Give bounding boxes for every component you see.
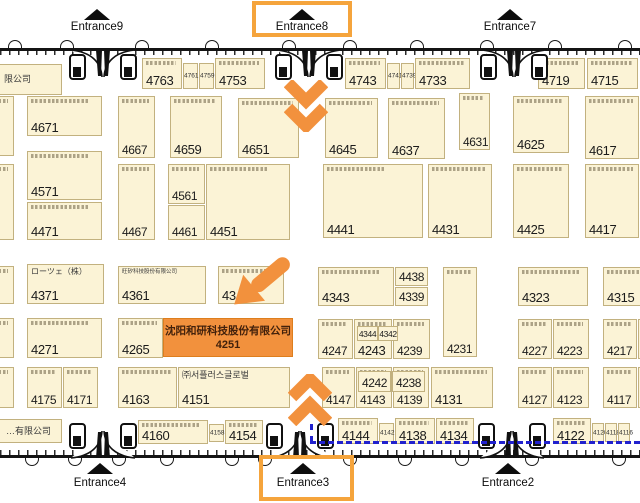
- booth-number: 4467: [122, 226, 147, 239]
- booth-number: 4116: [619, 429, 629, 436]
- booth-number: 4158: [210, 429, 223, 436]
- door-swing-arc-icon: [455, 458, 469, 466]
- booth-number: 4323: [522, 291, 549, 305]
- booth-4441: 4441: [323, 164, 423, 238]
- micro-label: [589, 99, 633, 103]
- micro-label: [342, 421, 372, 425]
- booth-number: 4631: [463, 136, 488, 149]
- booth-number: 4247: [322, 345, 347, 358]
- booth-company-label: 限公司: [4, 74, 31, 84]
- booth-4741: 4741: [387, 63, 400, 89]
- micro-label: [557, 370, 583, 374]
- booth-number: 4131: [435, 393, 462, 407]
- booth-4743: 4743: [345, 58, 386, 89]
- booth-4733: 4733: [415, 58, 470, 89]
- booth-4371: ローツェ（株）4371: [27, 264, 104, 304]
- door-swing-arc-icon: [410, 40, 424, 48]
- booth-4171: 4171: [63, 367, 98, 408]
- booth-partial-76: [0, 96, 14, 156]
- booth-4154: 4154: [225, 420, 263, 444]
- booth-4431: 4431: [428, 164, 492, 238]
- booth-4571: 4571: [27, 151, 102, 200]
- booth-number: 4223: [557, 345, 582, 358]
- micro-label: [591, 61, 632, 65]
- booth-4451: 4451: [206, 164, 290, 240]
- booth-4739: 4739: [401, 63, 414, 89]
- micro-label: [31, 99, 89, 103]
- booth-4238: 4238: [392, 371, 425, 392]
- micro-label: [522, 370, 546, 374]
- micro-label: [31, 370, 56, 374]
- booth-4339: 4339: [395, 287, 428, 306]
- door-swing-arc-icon: [282, 40, 296, 48]
- micro-label: [67, 370, 92, 374]
- micro-label: [435, 370, 487, 374]
- booth-number: 4265: [122, 343, 149, 357]
- door-swing-arc-icon: [205, 40, 219, 48]
- booth-4417: 4417: [585, 164, 639, 238]
- booth-number: 4761: [184, 72, 197, 79]
- door-swing-arc-icon: [480, 40, 494, 48]
- booth-4471: 4471: [27, 202, 102, 240]
- micro-label: [122, 99, 149, 103]
- highlight-booth-number: 4251: [164, 339, 292, 351]
- booth-number: 4617: [589, 144, 616, 158]
- micro-label: [419, 61, 464, 65]
- booth-company-label: …有限公司: [6, 426, 51, 436]
- booth-number: 4637: [392, 144, 419, 158]
- door-swing-arc-icon: [25, 458, 39, 466]
- booth-4645: 4645: [325, 98, 378, 158]
- micro-label: [557, 421, 585, 425]
- door-swing-arc-icon: [525, 458, 539, 466]
- micro-label: [0, 321, 8, 325]
- entrance-4-arrow-icon: [87, 463, 113, 474]
- booth-number: 4425: [517, 223, 544, 237]
- micro-label: [31, 321, 89, 325]
- booth-partial-78: [0, 266, 14, 304]
- booth-4425: 4425: [513, 164, 569, 238]
- booth-number: 4160: [142, 429, 169, 443]
- micro-label: [229, 423, 257, 427]
- micro-label: [399, 421, 429, 425]
- micro-label: [517, 99, 563, 103]
- booth-number: 4271: [31, 343, 58, 357]
- micro-label: [463, 96, 484, 100]
- booth-number: 4759: [200, 72, 213, 79]
- booth-number: 4154: [229, 429, 256, 443]
- micro-label: [122, 321, 157, 325]
- booth-4671: 4671: [27, 96, 102, 136]
- booth-4158: 4158: [209, 424, 224, 442]
- entrance-highlight-box-entrance8: [252, 1, 352, 37]
- booth-4323: 4323: [518, 267, 588, 306]
- micro-label: [0, 99, 8, 103]
- booth-number: 4163: [122, 393, 149, 407]
- booth-4120: 4120: [592, 423, 604, 442]
- booth-4438: 4438: [395, 267, 428, 286]
- door-swing-arc-icon: [112, 458, 126, 466]
- micro-label: [174, 99, 216, 103]
- door-icon: [275, 54, 292, 80]
- micro-label: [122, 370, 171, 374]
- micro-label: [0, 269, 8, 273]
- entrance-highlight-box-entrance3: [259, 455, 354, 501]
- booth-4763: 4763: [142, 58, 182, 89]
- booth-4175: 4175: [27, 367, 62, 408]
- booth-company-label: ローツェ（株）: [31, 267, 87, 276]
- booth-number: 4315: [607, 291, 634, 305]
- micro-label: [142, 423, 200, 427]
- micro-label: [607, 370, 631, 374]
- entrance-2-label: Entrance2: [482, 477, 534, 489]
- booth-4343: 4343: [318, 267, 394, 306]
- booth-4123: 4123: [553, 367, 589, 408]
- target-arrow-icon: [223, 246, 298, 317]
- booth-4461: 4461: [168, 205, 205, 240]
- door-swing-arc-icon: [8, 40, 22, 48]
- door-swing-arc-icon: [160, 458, 174, 466]
- booth-4265: 4265: [118, 318, 163, 358]
- booth-4344: 4344: [357, 326, 378, 341]
- booth-number: 4671: [31, 121, 58, 135]
- booth-number: 4361: [122, 289, 149, 303]
- door-icon: [69, 54, 86, 80]
- booth-company-label: 旺矽科技股份有限公司: [122, 269, 177, 275]
- micro-label: [0, 370, 8, 374]
- door-swing-arc-icon: [68, 458, 82, 466]
- micro-label: [219, 61, 259, 65]
- target-arrow-shaft: [248, 254, 293, 295]
- door-icon: [326, 54, 343, 80]
- booth-number: 4117: [607, 394, 631, 407]
- micro-label: [522, 270, 580, 274]
- booth-4659: 4659: [170, 96, 222, 158]
- exhibition-floor-plan: 限公司4763476147594753474347414739473347194…: [0, 0, 640, 503]
- micro-label: [146, 61, 176, 65]
- booth-partial-79: [0, 318, 14, 358]
- micro-label: [522, 322, 546, 326]
- booth-number: 4753: [219, 74, 246, 88]
- booth-partial-80: [0, 367, 14, 408]
- booth-number: 4175: [31, 394, 56, 407]
- door-icon: [480, 54, 497, 80]
- booth-number: 4451: [210, 225, 237, 239]
- micro-label: [392, 101, 439, 105]
- micro-label: [557, 322, 583, 326]
- booth-4227: 4227: [518, 319, 552, 359]
- booth-number: 4417: [589, 223, 616, 237]
- booth-number: 4571: [31, 185, 58, 199]
- booth-number: 4151: [182, 393, 209, 407]
- booth-4467: 4467: [118, 164, 155, 240]
- door-icon: [531, 54, 548, 80]
- micro-label: [607, 270, 640, 274]
- booth-4239: 4239: [393, 319, 430, 359]
- micro-label: [447, 270, 471, 274]
- door-swing-arc-icon: [612, 458, 626, 466]
- booth-number: 4217: [607, 345, 632, 358]
- booth-number: 4461: [172, 226, 197, 239]
- booth-number: 4339: [396, 291, 427, 304]
- booth-partial-77: [0, 164, 14, 240]
- booth-4759: 4759: [199, 63, 214, 89]
- booth-number: 4239: [397, 345, 422, 358]
- micro-label: [432, 167, 486, 171]
- door-icon: [120, 54, 137, 80]
- booth-number: 4438: [396, 271, 427, 284]
- booth-number: 4651: [242, 143, 269, 157]
- booth-partial-0: 限公司: [0, 64, 62, 95]
- booth-number: 4118: [606, 429, 616, 436]
- entrance-9-label: Entrance9: [71, 21, 123, 33]
- route-chevron-down-icon: [284, 80, 328, 137]
- booth-number: 4715: [591, 74, 618, 88]
- booth-number: 4561: [172, 190, 197, 203]
- booth-4163: 4163: [118, 367, 177, 408]
- micro-label: [517, 167, 563, 171]
- booth-4142: 4142: [379, 423, 394, 442]
- booth-4617: 4617: [585, 96, 639, 159]
- booth-number: 4741: [388, 72, 399, 79]
- booth-number: 4344: [358, 330, 377, 339]
- route-dashed-line: [310, 441, 640, 444]
- booth-number: 4659: [174, 143, 201, 157]
- highlight-company-name: 沈阳和研科技股份有限公司: [164, 323, 292, 338]
- booth-4223: 4223: [553, 319, 589, 359]
- booth-4667: 4667: [118, 96, 155, 158]
- booth-number: 4667: [122, 144, 147, 157]
- booth-number: 4120: [593, 429, 603, 436]
- booth-number: 4733: [419, 74, 446, 88]
- booth-number: 4238: [393, 377, 424, 390]
- booth-4715: 4715: [587, 58, 638, 89]
- booth-4251-highlighted: 沈阳和研科技股份有限公司4251: [163, 318, 293, 357]
- micro-label: [172, 167, 199, 171]
- booth-4342: 4342: [378, 326, 398, 341]
- booth-number: 4743: [349, 74, 376, 88]
- door-icon: [529, 423, 546, 449]
- booth-number: 4371: [31, 289, 58, 303]
- micro-label: [589, 167, 633, 171]
- booth-4118: 4118: [605, 423, 617, 442]
- micro-label: [0, 167, 8, 171]
- booth-number: 4139: [397, 394, 422, 407]
- micro-label: [349, 61, 380, 65]
- entrance-7-label: Entrance7: [484, 21, 536, 33]
- entrance-9-arrow-icon: [84, 9, 110, 20]
- booth-4242: 4242: [358, 371, 391, 392]
- door-swing-arc-icon: [225, 458, 239, 466]
- booth-4231: 4231: [443, 267, 477, 357]
- booth-partial-64: …有限公司: [0, 419, 62, 443]
- micro-label: [329, 101, 372, 105]
- door-swing-arc-icon: [548, 40, 562, 48]
- booth-4271: 4271: [27, 318, 102, 358]
- door-swing-arc-icon: [618, 40, 632, 48]
- booth-4625: 4625: [513, 96, 569, 153]
- booth-number: 4763: [146, 74, 173, 88]
- route-dashed-line-vertical: [310, 424, 313, 442]
- booth-number: 4243: [358, 344, 385, 358]
- booth-4753: 4753: [215, 58, 265, 89]
- booth-4247: 4247: [318, 319, 353, 359]
- booth-number: 4143: [360, 394, 385, 407]
- booth-4131: 4131: [431, 367, 493, 408]
- booth-number: 4171: [67, 394, 92, 407]
- door-icon: [120, 423, 137, 449]
- route-chevron-up-icon: [288, 374, 332, 431]
- booth-4151: ㈜서플러스글로벌4151: [178, 367, 290, 408]
- booth-4160: 4160: [138, 420, 208, 444]
- booth-number: 4123: [557, 394, 582, 407]
- booth-number: 4739: [402, 72, 413, 79]
- booth-number: 4431: [432, 223, 459, 237]
- booth-4561: 4561: [168, 164, 205, 204]
- micro-label: [440, 421, 468, 425]
- micro-label: [31, 154, 89, 158]
- door-icon: [266, 423, 283, 449]
- entrance-2-arrow-icon: [495, 463, 521, 474]
- booth-number: 4343: [322, 291, 349, 305]
- booth-number: 4231: [447, 343, 472, 356]
- door-icon: [478, 423, 495, 449]
- micro-label: [607, 322, 631, 326]
- micro-label: [31, 205, 89, 209]
- door-swing-arc-icon: [343, 40, 357, 48]
- booth-number: 4471: [31, 225, 58, 239]
- booth-4217: 4217: [603, 319, 637, 359]
- door-swing-arc-icon: [135, 40, 149, 48]
- booth-4631: 4631: [459, 93, 490, 150]
- micro-label: [327, 167, 385, 171]
- booth-number: 4342: [379, 330, 397, 339]
- micro-label: [322, 270, 380, 274]
- booth-number: 4127: [522, 394, 547, 407]
- booth-4761: 4761: [183, 63, 198, 89]
- entrance-7-arrow-icon: [497, 9, 523, 20]
- booth-number: 4142: [380, 429, 393, 436]
- micro-label: [397, 322, 424, 326]
- micro-label: [210, 167, 268, 171]
- booth-4116: 4116: [618, 423, 630, 442]
- booth-4117: 4117: [603, 367, 637, 408]
- booth-4127: 4127: [518, 367, 552, 408]
- booth-4637: 4637: [388, 98, 445, 159]
- booth-number: 4441: [327, 223, 354, 237]
- booth-number: 4227: [522, 345, 547, 358]
- booth-4315: 4315: [603, 267, 640, 306]
- door-swing-arc-icon: [60, 40, 74, 48]
- entrance-4-label: Entrance4: [74, 477, 126, 489]
- door-swing-arc-icon: [398, 458, 412, 466]
- micro-label: [322, 322, 347, 326]
- booth-number: 4645: [329, 143, 356, 157]
- booth-4361: 旺矽科技股份有限公司4361: [118, 266, 206, 304]
- door-icon: [69, 423, 86, 449]
- booth-company-label: ㈜서플러스글로벌: [182, 370, 249, 380]
- booth-number: 4625: [517, 138, 544, 152]
- booth-number: 4242: [359, 377, 390, 390]
- micro-label: [122, 167, 149, 171]
